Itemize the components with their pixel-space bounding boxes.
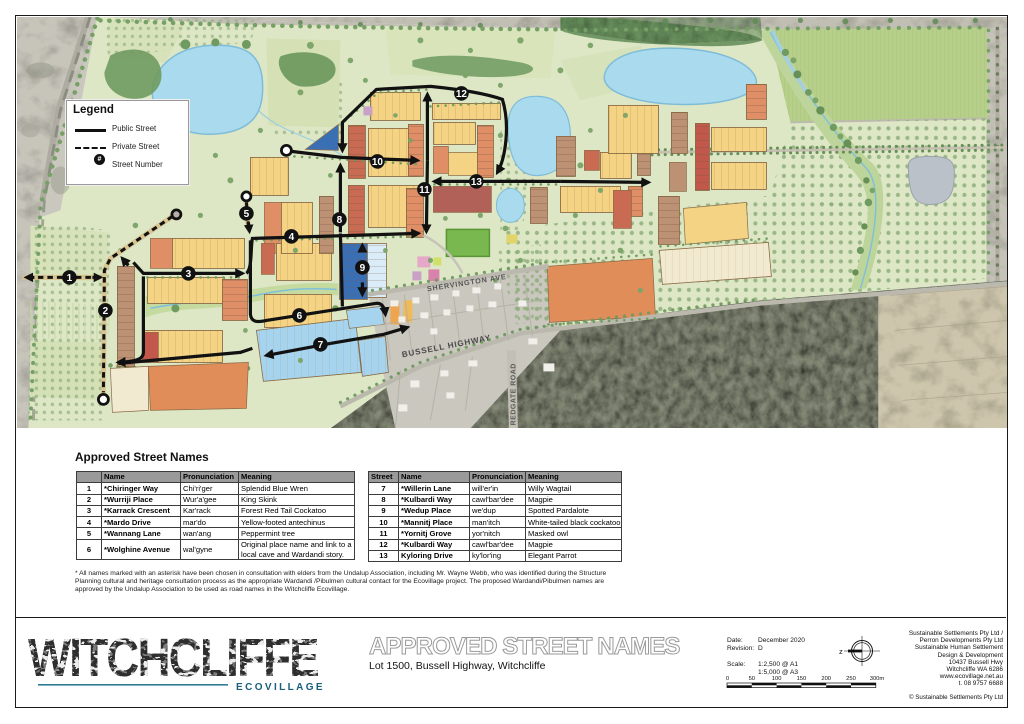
svg-text:11: 11	[419, 184, 430, 195]
svg-text:REDGATE ROAD: REDGATE ROAD	[510, 363, 517, 425]
svg-text:100: 100	[772, 676, 782, 682]
svg-text:3: 3	[185, 268, 191, 279]
svg-text:1: 1	[66, 272, 72, 283]
svg-text:0: 0	[726, 676, 729, 682]
svg-text:5: 5	[243, 208, 249, 219]
svg-text:2: 2	[102, 305, 108, 316]
svg-text:6: 6	[296, 310, 302, 321]
svg-text:50: 50	[749, 676, 755, 682]
svg-text:12: 12	[455, 88, 467, 99]
svg-text:4: 4	[288, 231, 294, 242]
svg-text:9: 9	[359, 262, 365, 273]
svg-text:13: 13	[470, 176, 482, 187]
svg-text:7: 7	[317, 339, 323, 350]
svg-text:8: 8	[336, 214, 342, 225]
svg-text:10: 10	[371, 156, 383, 167]
svg-text:WITCHCLIFFE: WITCHCLIFFE	[28, 630, 318, 688]
svg-text:ECOVILLAGE: ECOVILLAGE	[236, 682, 325, 693]
